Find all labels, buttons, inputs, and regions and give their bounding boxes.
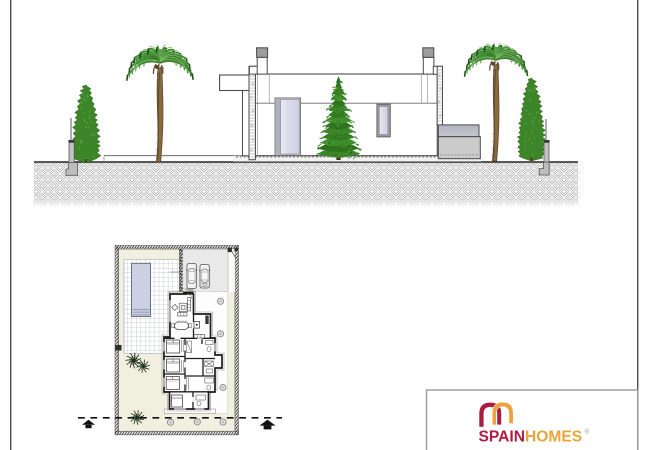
- svg-text:SPAINHOMES: SPAINHOMES: [479, 428, 583, 445]
- svg-text:®: ®: [585, 429, 590, 436]
